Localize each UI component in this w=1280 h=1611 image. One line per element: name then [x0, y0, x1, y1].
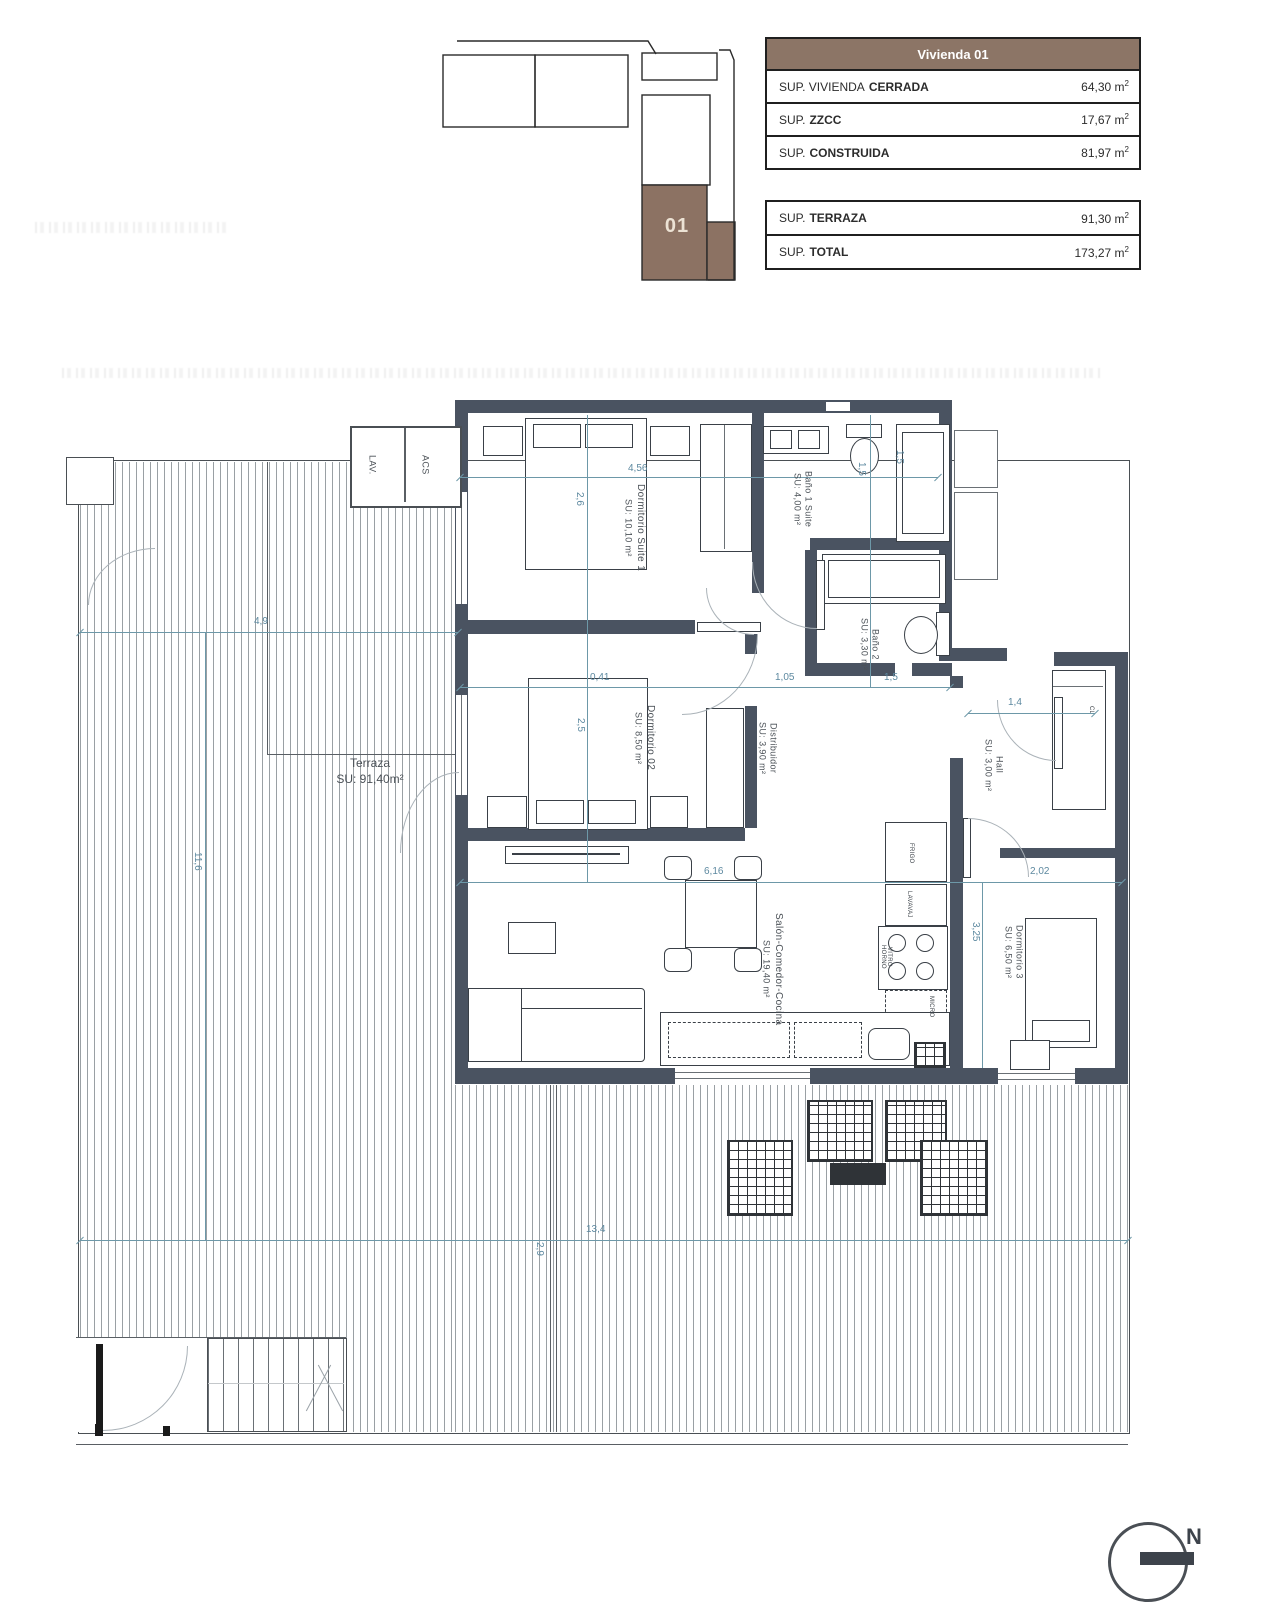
chair [734, 856, 762, 880]
fridge [885, 822, 947, 882]
window-line [461, 695, 462, 795]
window [826, 402, 850, 411]
door-leaf [816, 560, 825, 630]
row-label: SUP. [779, 113, 805, 127]
table-row: SUP.TOTAL 173,27 m2 [767, 236, 1139, 268]
dimension-label: 1,5 [856, 462, 867, 476]
faint-watermark-text [62, 368, 1102, 378]
pillow [585, 424, 633, 448]
floor-plan-sheet: 01 Vivienda 01 SUP. VIVIENDACERRADA 64,3… [0, 0, 1280, 1611]
pillow [1032, 1020, 1090, 1042]
sink [770, 430, 792, 449]
row-label: SUP. [779, 211, 805, 225]
dimension-line [80, 1240, 1128, 1241]
toilet [904, 616, 938, 654]
totals-table: SUP.TERRAZA 91,30 m2 SUP.TOTAL 173,27 m2 [765, 200, 1141, 270]
window-line [461, 492, 462, 604]
coffee-table [508, 922, 556, 954]
dimension-label: 11,6 [192, 852, 203, 871]
terrace-boundary [78, 460, 1130, 1434]
compass-needle-icon [1140, 1552, 1194, 1565]
dimension-label: 1,4 [1008, 697, 1022, 708]
dimension-line [460, 882, 1122, 883]
stairs-midline [208, 1383, 344, 1384]
key-plan-unit-number: 01 [652, 215, 702, 238]
terrace-grate [920, 1140, 988, 1216]
dimension-label: 13,4 [586, 1224, 605, 1235]
dimension-label: 2,02 [1030, 866, 1049, 877]
hob-label: VITROHORNO [880, 932, 892, 982]
terrace-divider-line [267, 462, 268, 755]
terrace-joint-line [556, 1085, 557, 1432]
service-shaft [954, 430, 998, 488]
window-line [998, 1079, 1075, 1080]
window [998, 1068, 1075, 1084]
pillow [536, 800, 584, 824]
sofa-chaise [468, 988, 522, 1062]
service-shaft [954, 492, 998, 580]
dimension-line [205, 632, 206, 1240]
wall [805, 663, 895, 676]
burner [916, 962, 934, 980]
window-line [998, 1073, 1075, 1074]
dimension-label: 1,5 [894, 450, 905, 464]
chair [664, 948, 692, 972]
chair [734, 948, 762, 972]
shower-tray [902, 432, 944, 534]
acs-label: ACS [419, 440, 430, 490]
toilet-tank [936, 612, 950, 656]
row-value: 81,97 m2 [1081, 145, 1129, 160]
row-value: 91,30 m2 [1081, 211, 1129, 226]
row-label: SUP. [779, 146, 805, 160]
table-row: SUP.TERRAZA 91,30 m2 [767, 202, 1139, 236]
row-label-bold: CERRADA [869, 80, 929, 94]
dimension-label: 6,16 [704, 866, 723, 877]
compass-north-label: N [1186, 1524, 1202, 1550]
summary-table: Vivienda 01 SUP. VIVIENDACERRADA 64,30 m… [765, 37, 1141, 170]
wall [810, 1068, 998, 1084]
row-label-bold: TOTAL [809, 245, 848, 259]
nightstand [1010, 1040, 1050, 1070]
nightstand [650, 426, 690, 456]
terrace-edge-line [76, 1444, 1128, 1445]
burner [916, 934, 934, 952]
sliding-door-line [675, 1072, 810, 1073]
dining-table [685, 880, 757, 948]
terrace-joint-line [550, 1085, 551, 1432]
pillow [588, 800, 636, 824]
room-label-dormitorio-suite-1: Dormitorio Suite 1SU: 10,10 m² [622, 462, 646, 594]
table-row: SUP.ZZCC 17,67 m2 [767, 104, 1139, 137]
kitchen-sink [868, 1028, 910, 1060]
sliding-door-line [675, 1078, 810, 1079]
terrace-divider-line [267, 754, 458, 755]
toilet-tank [846, 424, 882, 438]
dishwasher [885, 884, 947, 926]
utility-divider [404, 428, 406, 502]
terrace-corner-planter [66, 457, 114, 505]
key-plan [420, 28, 740, 290]
dimension-label: 0,41 [590, 672, 609, 683]
wall [1115, 652, 1128, 1084]
terrace-dark-bar [830, 1163, 886, 1185]
table-row: SUP.CONSTRUIDA 81,97 m2 [767, 137, 1139, 168]
dimension-line [968, 713, 1095, 714]
table-row: SUP. VIVIENDACERRADA 64,30 m2 [767, 71, 1139, 104]
chair [664, 856, 692, 880]
under-counter-appliance [794, 1022, 862, 1058]
fridge-label: FRIGO [908, 836, 914, 870]
lav-label: LAV. [366, 436, 377, 494]
room-label-dormitorio-02: Dormitorio 02SU: 8,50 m² [632, 682, 656, 794]
dimension-label: 3,25 [970, 922, 981, 941]
dishwasher-label: LAVAVAJ [906, 884, 912, 924]
stairs [207, 1338, 347, 1432]
wardrobe [700, 424, 752, 552]
nightstand [650, 796, 688, 828]
bathtub-inner [828, 560, 940, 598]
nightstand [487, 796, 527, 828]
drainer-grid [914, 1042, 946, 1068]
dimension-line [587, 415, 588, 882]
dimension-label: 2,5 [575, 718, 586, 732]
dimension-label: 1,5 [884, 672, 898, 683]
wall [455, 620, 695, 634]
row-label: SUP. VIVIENDA [779, 80, 865, 94]
nightstand [483, 426, 523, 456]
pillow [533, 424, 581, 448]
dimension-line [460, 477, 938, 478]
key-plan-outline [420, 28, 740, 290]
door-frame-mark [95, 1424, 103, 1436]
dimension-label: 1,05 [775, 672, 794, 683]
dimension-line [80, 632, 458, 633]
wall [950, 758, 963, 1068]
wall [455, 1068, 675, 1084]
closet-shelf-line [1053, 686, 1103, 687]
dimension-label: 2,9 [534, 1242, 545, 1256]
terrace-grate [807, 1100, 873, 1162]
row-value: 64,30 m2 [1081, 79, 1129, 94]
wall [912, 663, 952, 676]
sideboard [505, 846, 629, 864]
row-value: 173,27 m2 [1075, 245, 1130, 260]
room-label-bano-2: Baño 2SU: 3,30 m² [858, 598, 881, 690]
row-label-bold: TERRAZA [809, 211, 866, 225]
wardrobe-line [724, 425, 725, 549]
room-label-terraza: TerrazaSU: 91,40m² [280, 756, 460, 787]
microwave-label: MICRO [928, 992, 934, 1022]
room-label-dormitorio-3: Dormitorio 3SU: 6,50 m² [1002, 898, 1025, 1006]
entry-door-leaf [96, 1344, 103, 1432]
sideboard-line [512, 853, 620, 855]
faint-watermark-text [35, 222, 230, 233]
row-label-bold: CONSTRUIDA [809, 146, 889, 160]
room-label-bano-1-suite: Baño 1 SuiteSU: 4,00 m² [791, 446, 814, 552]
sliding-door [675, 1068, 810, 1084]
wardrobe [706, 708, 744, 828]
door-frame-mark [163, 1426, 170, 1436]
summary-table-header: Vivienda 01 [767, 39, 1139, 71]
dimension-label: 4,9 [254, 616, 268, 627]
wall [1075, 1068, 1128, 1084]
row-label-bold: ZZCC [809, 113, 841, 127]
wall [455, 400, 952, 413]
room-label-salon-comedor-cocina: Salón-Comedor-CocinaSU: 19,40 m² [760, 886, 784, 1052]
room-label-distribuidor: DistribuidorSU: 3,90 m² [756, 700, 779, 796]
room-label-hall: HallSU: 3,00 m² [982, 722, 1005, 808]
terrace-grate [727, 1140, 793, 1216]
dimension-line [982, 882, 983, 1068]
row-label: SUP. [779, 245, 805, 259]
dimension-label: 2,6 [574, 492, 585, 506]
row-value: 17,67 m2 [1081, 112, 1129, 127]
